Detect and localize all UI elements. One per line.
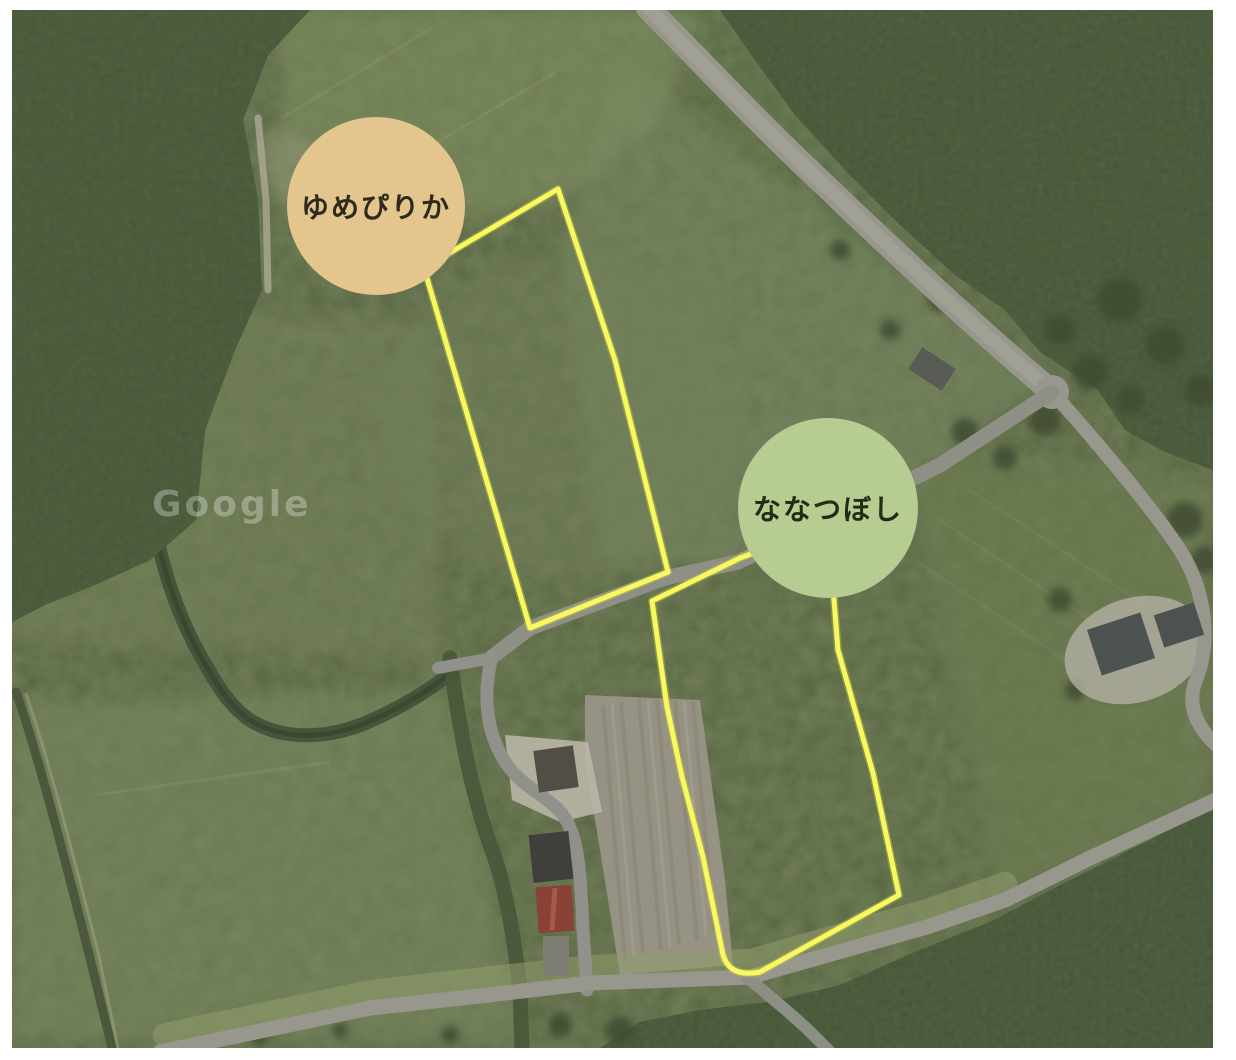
satellite-map: Google ゆめぴりか ななつぼし <box>0 0 1236 1060</box>
plot-marker-nanatsuboshi: ななつぼし <box>738 418 918 598</box>
google-watermark: Google <box>152 484 312 525</box>
plot-label-yumepirika: ゆめぴりか <box>301 186 451 226</box>
farm-building-dark <box>529 831 574 883</box>
plot-label-nanatsuboshi: ななつぼし <box>753 488 903 528</box>
farm-barn-upper <box>533 745 578 792</box>
satellite-image <box>0 0 1236 1060</box>
plot-marker-yumepirika: ゆめぴりか <box>287 117 465 295</box>
farm-building-gray <box>543 936 569 976</box>
